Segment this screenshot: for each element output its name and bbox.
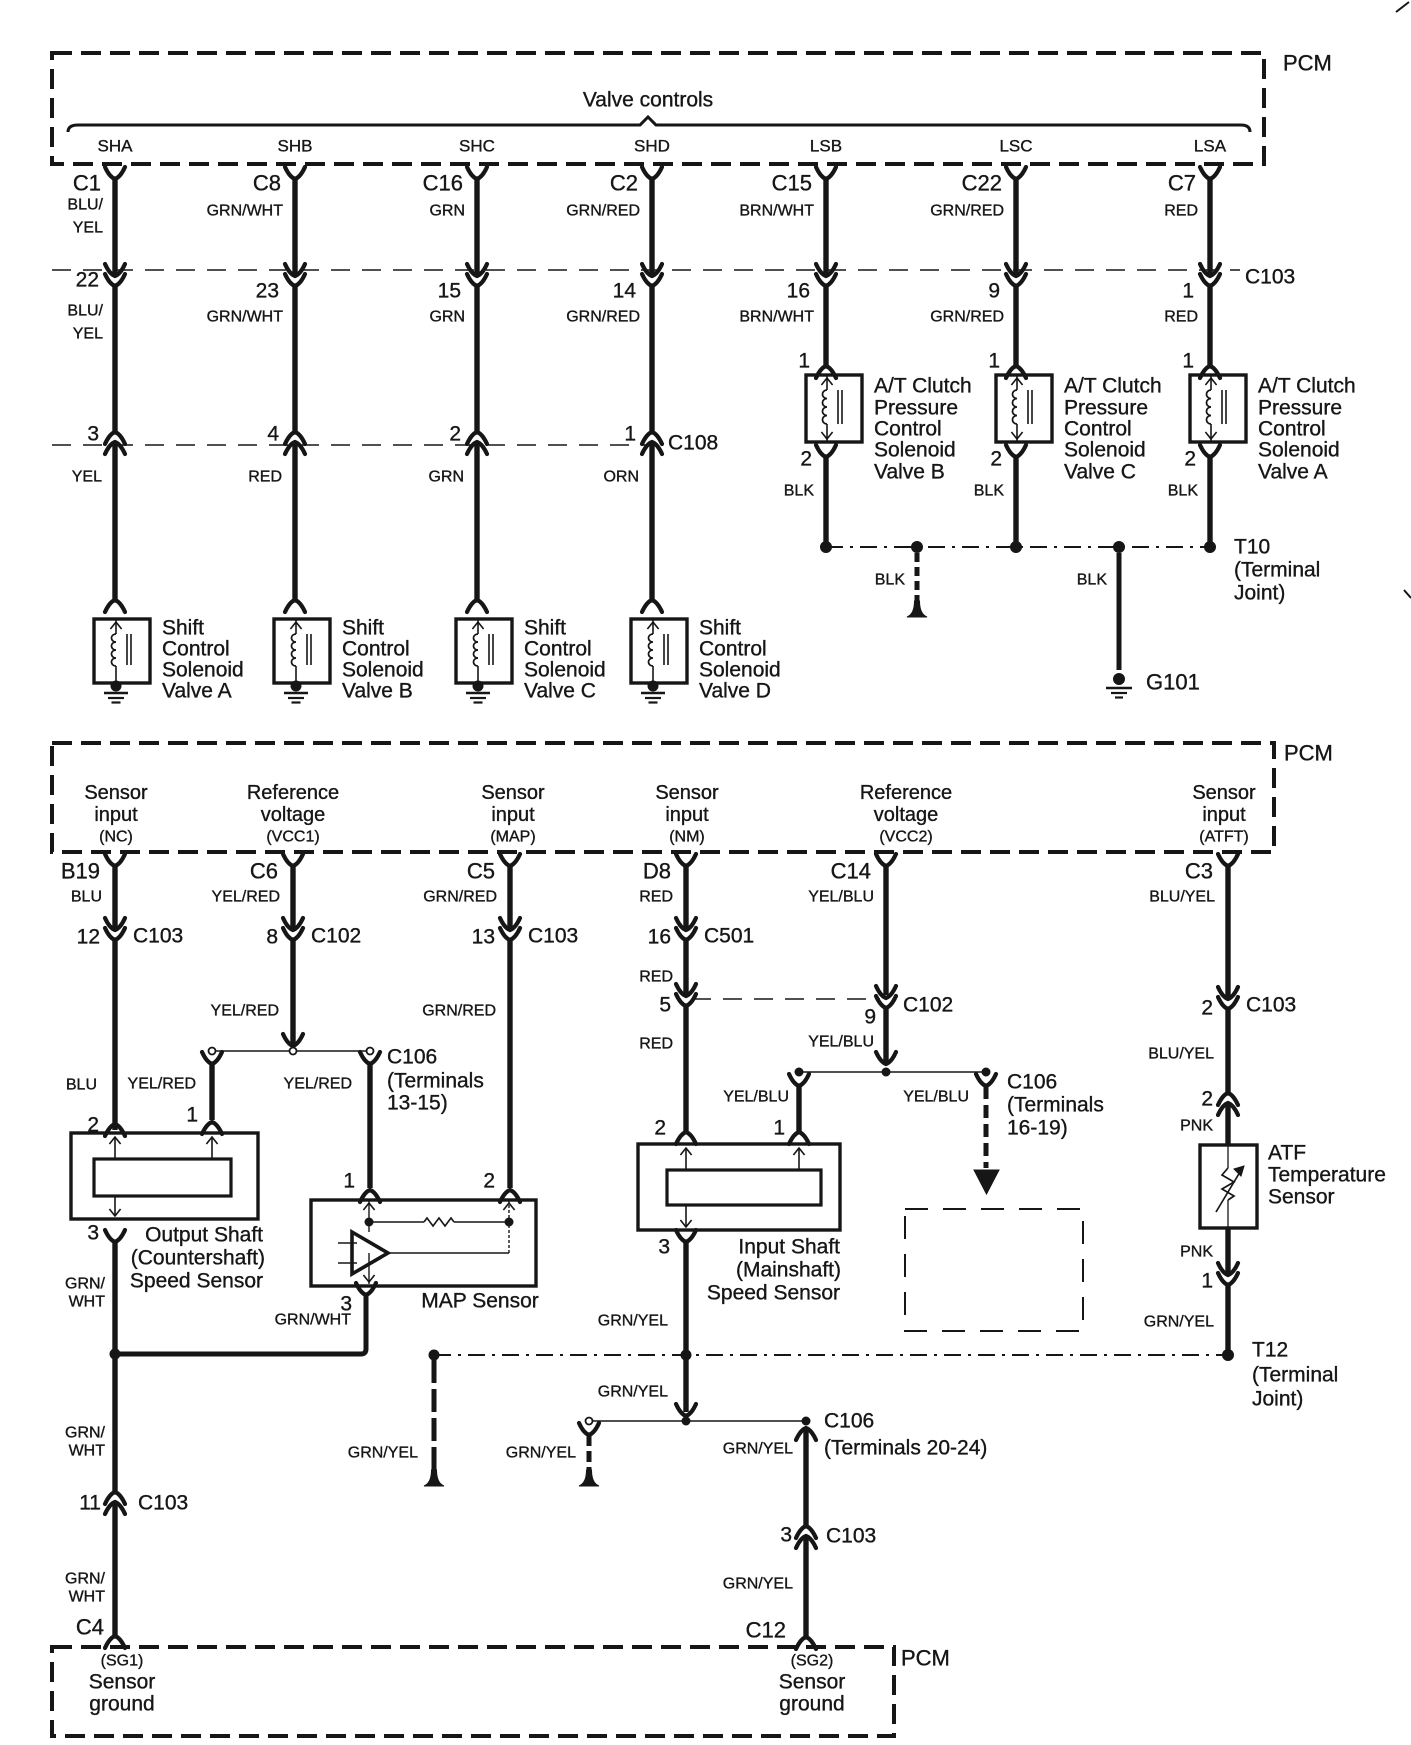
svg-text:YEL/BLU: YEL/BLU: [808, 1034, 874, 1051]
svg-text:16: 16: [787, 280, 810, 303]
svg-text:SHD: SHD: [634, 137, 670, 156]
svg-text:GRN/YEL: GRN/YEL: [723, 1441, 793, 1458]
svg-text:PCM: PCM: [1284, 741, 1333, 766]
svg-text:C103: C103: [1245, 266, 1295, 289]
svg-text:C102: C102: [903, 994, 953, 1017]
svg-text:(VCC1): (VCC1): [266, 829, 319, 846]
svg-text:GRN/RED: GRN/RED: [566, 309, 640, 326]
svg-text:Shift: Shift: [162, 617, 204, 640]
svg-text:Shift: Shift: [524, 617, 566, 640]
svg-text:3: 3: [87, 423, 99, 446]
svg-text:BLU/: BLU/: [67, 303, 103, 320]
svg-text:(NM): (NM): [669, 829, 705, 846]
svg-text:3: 3: [87, 1222, 99, 1245]
svg-text:GRN/RED: GRN/RED: [930, 203, 1004, 220]
svg-text:GRN/WHT: GRN/WHT: [207, 309, 284, 326]
svg-text:9: 9: [988, 280, 1000, 303]
svg-text:12: 12: [77, 926, 100, 949]
svg-text:C106: C106: [824, 1410, 874, 1433]
svg-text:23: 23: [256, 280, 279, 303]
svg-text:Joint): Joint): [1234, 582, 1285, 605]
svg-text:A/T Clutch: A/T Clutch: [1064, 375, 1162, 398]
svg-text:C4: C4: [76, 1615, 104, 1640]
svg-text:3: 3: [658, 1236, 670, 1259]
svg-text:Shift: Shift: [342, 617, 384, 640]
svg-text:GRN/: GRN/: [65, 1571, 106, 1588]
svg-text:RED: RED: [639, 969, 673, 986]
svg-text:8: 8: [266, 926, 278, 949]
svg-text:Valve C: Valve C: [524, 680, 596, 703]
svg-text:13-15): 13-15): [387, 1092, 448, 1115]
svg-text:Sensor: Sensor: [779, 1671, 846, 1694]
svg-text:PCM: PCM: [901, 1646, 950, 1671]
svg-text:(Countershaft): (Countershaft): [131, 1247, 265, 1270]
svg-text:Input Shaft: Input Shaft: [738, 1236, 840, 1259]
svg-text:C103: C103: [528, 925, 578, 948]
svg-text:2: 2: [1201, 1088, 1213, 1111]
svg-text:15: 15: [438, 280, 461, 303]
svg-text:Valve D: Valve D: [699, 680, 771, 703]
svg-text:BLK: BLK: [1168, 483, 1199, 500]
svg-text:Sensor: Sensor: [84, 782, 148, 804]
svg-text:(NC): (NC): [99, 829, 133, 846]
svg-text:(Terminal: (Terminal: [1234, 559, 1320, 582]
svg-text:1: 1: [624, 423, 636, 446]
svg-text:Reference: Reference: [247, 782, 339, 804]
svg-text:C3: C3: [1185, 859, 1213, 884]
svg-text:(Mainshaft): (Mainshaft): [736, 1259, 841, 1282]
svg-text:SHA: SHA: [98, 137, 134, 156]
svg-text:2: 2: [800, 448, 812, 471]
svg-text:GRN/: GRN/: [65, 1425, 106, 1442]
svg-text:GRN: GRN: [428, 469, 464, 486]
svg-text:(SG1): (SG1): [101, 1653, 144, 1670]
svg-text:PNK: PNK: [1180, 1244, 1213, 1261]
svg-text:B19: B19: [61, 859, 100, 884]
svg-text:13: 13: [472, 926, 495, 949]
svg-text:BLU/YEL: BLU/YEL: [1149, 889, 1215, 906]
svg-text:RED: RED: [248, 469, 282, 486]
svg-text:RED: RED: [1164, 203, 1198, 220]
svg-text:GRN/RED: GRN/RED: [422, 1003, 496, 1020]
svg-text:ATF: ATF: [1268, 1142, 1306, 1165]
svg-text:Solenoid: Solenoid: [1258, 439, 1340, 462]
svg-text:C7: C7: [1168, 171, 1196, 196]
svg-text:16: 16: [648, 926, 671, 949]
svg-text:C8: C8: [253, 171, 281, 196]
svg-text:Sensor: Sensor: [1268, 1186, 1335, 1209]
svg-text:ground: ground: [89, 1693, 154, 1716]
svg-text:Pressure: Pressure: [1258, 397, 1342, 420]
svg-text:C12: C12: [746, 1618, 786, 1643]
svg-text:1: 1: [1182, 280, 1194, 303]
svg-text:4: 4: [267, 423, 279, 446]
svg-text:GRN/YEL: GRN/YEL: [506, 1445, 576, 1462]
svg-text:GRN: GRN: [429, 309, 465, 326]
svg-text:1: 1: [1201, 1270, 1213, 1293]
svg-text:C16: C16: [423, 171, 463, 196]
svg-text:Temperature: Temperature: [1268, 1164, 1386, 1187]
svg-text:(Terminal: (Terminal: [1252, 1364, 1338, 1387]
svg-text:SHC: SHC: [459, 137, 495, 156]
svg-text:GRN: GRN: [429, 203, 465, 220]
svg-text:9: 9: [864, 1006, 876, 1029]
svg-text:YEL: YEL: [73, 220, 103, 237]
svg-text:Solenoid: Solenoid: [1064, 439, 1146, 462]
svg-text:1: 1: [798, 350, 810, 373]
svg-text:Solenoid: Solenoid: [524, 659, 606, 682]
svg-text:C106: C106: [387, 1046, 437, 1069]
svg-text:YEL: YEL: [72, 469, 102, 486]
svg-text:Pressure: Pressure: [1064, 397, 1148, 420]
svg-text:WHT: WHT: [69, 1294, 106, 1311]
svg-text:C106: C106: [1007, 1071, 1057, 1094]
svg-text:ORN: ORN: [603, 469, 639, 486]
svg-text:YEL/BLU: YEL/BLU: [808, 889, 874, 906]
svg-text:Valve controls: Valve controls: [583, 89, 713, 112]
svg-text:16-19): 16-19): [1007, 1117, 1068, 1140]
svg-text:YEL/RED: YEL/RED: [211, 1003, 279, 1020]
svg-text:Shift: Shift: [699, 617, 741, 640]
svg-text:RED: RED: [639, 1036, 673, 1053]
svg-text:14: 14: [613, 280, 637, 303]
svg-text:T10: T10: [1234, 536, 1270, 559]
svg-text:Control: Control: [699, 638, 767, 661]
svg-text:LSA: LSA: [1194, 137, 1227, 156]
svg-text:Sensor: Sensor: [481, 782, 545, 804]
svg-text:Valve A: Valve A: [162, 680, 232, 703]
svg-text:5: 5: [659, 994, 671, 1017]
svg-text:1: 1: [773, 1117, 785, 1140]
svg-text:BLU: BLU: [71, 889, 102, 906]
svg-text:Solenoid: Solenoid: [342, 659, 424, 682]
svg-text:C103: C103: [826, 1525, 876, 1548]
svg-text:Solenoid: Solenoid: [162, 659, 244, 682]
svg-text:Solenoid: Solenoid: [699, 659, 781, 682]
svg-text:input: input: [665, 804, 709, 826]
svg-text:BLU/: BLU/: [67, 197, 103, 214]
svg-text:Valve A: Valve A: [1258, 461, 1328, 484]
svg-text:Output Shaft: Output Shaft: [145, 1224, 263, 1247]
svg-text:C14: C14: [831, 859, 871, 884]
svg-text:YEL/BLU: YEL/BLU: [903, 1089, 969, 1106]
svg-text:voltage: voltage: [261, 804, 326, 826]
svg-text:Sensor: Sensor: [655, 782, 719, 804]
svg-text:Control: Control: [524, 638, 592, 661]
svg-text:11: 11: [79, 1492, 101, 1515]
svg-text:1: 1: [1182, 350, 1194, 373]
svg-text:Control: Control: [342, 638, 410, 661]
svg-text:(Terminals 20-24): (Terminals 20-24): [824, 1437, 987, 1460]
svg-text:2: 2: [449, 423, 461, 446]
svg-text:BLK: BLK: [974, 483, 1005, 500]
svg-text:C15: C15: [772, 171, 812, 196]
svg-text:2: 2: [654, 1117, 666, 1140]
svg-text:(ATFT): (ATFT): [1199, 829, 1248, 846]
svg-text:Reference: Reference: [860, 782, 952, 804]
svg-text:C22: C22: [962, 171, 1002, 196]
svg-text:BLU: BLU: [66, 1077, 97, 1094]
svg-text:GRN/RED: GRN/RED: [423, 889, 497, 906]
svg-text:BLK: BLK: [875, 572, 906, 589]
svg-text:LSC: LSC: [999, 137, 1032, 156]
svg-text:YEL/BLU: YEL/BLU: [723, 1089, 789, 1106]
svg-text:Speed Sensor: Speed Sensor: [130, 1270, 263, 1293]
svg-text:C108: C108: [668, 432, 718, 455]
svg-text:LSB: LSB: [810, 137, 842, 156]
svg-text:1: 1: [343, 1170, 355, 1193]
svg-text:input: input: [1202, 804, 1246, 826]
svg-text:GRN/RED: GRN/RED: [930, 309, 1004, 326]
svg-text:(SG2): (SG2): [791, 1653, 834, 1670]
svg-text:BRN/WHT: BRN/WHT: [739, 309, 814, 326]
svg-text:Sensor: Sensor: [1192, 782, 1256, 804]
svg-text:G101: G101: [1146, 670, 1200, 695]
svg-text:Solenoid: Solenoid: [874, 439, 956, 462]
svg-text:PNK: PNK: [1180, 1118, 1213, 1135]
svg-text:Pressure: Pressure: [874, 397, 958, 420]
svg-text:voltage: voltage: [874, 804, 939, 826]
svg-text:WHT: WHT: [69, 1443, 106, 1460]
svg-text:input: input: [491, 804, 535, 826]
svg-text:(MAP): (MAP): [490, 829, 535, 846]
svg-text:C2: C2: [610, 171, 638, 196]
svg-text:RED: RED: [639, 889, 673, 906]
svg-text:YEL/RED: YEL/RED: [128, 1076, 196, 1093]
svg-text:(Terminals: (Terminals: [387, 1070, 484, 1093]
svg-text:Control: Control: [162, 638, 230, 661]
svg-text:GRN/WHT: GRN/WHT: [275, 1312, 352, 1329]
svg-text:GRN/YEL: GRN/YEL: [598, 1384, 668, 1401]
svg-text:BLU/YEL: BLU/YEL: [1148, 1046, 1214, 1063]
svg-text:2: 2: [990, 448, 1002, 471]
svg-text:D8: D8: [643, 859, 671, 884]
svg-text:Valve B: Valve B: [342, 680, 413, 703]
svg-text:GRN/YEL: GRN/YEL: [348, 1445, 418, 1462]
svg-text:GRN/: GRN/: [65, 1276, 106, 1293]
svg-text:22: 22: [76, 269, 99, 292]
svg-text:C5: C5: [467, 859, 495, 884]
svg-text:GRN/YEL: GRN/YEL: [598, 1313, 668, 1330]
svg-text:C102: C102: [311, 925, 361, 948]
svg-text:Control: Control: [874, 418, 942, 441]
svg-text:Valve C: Valve C: [1064, 461, 1136, 484]
svg-text:Valve B: Valve B: [874, 461, 945, 484]
svg-text:BLK: BLK: [1077, 572, 1108, 589]
svg-text:RED: RED: [1164, 309, 1198, 326]
svg-text:input: input: [94, 804, 138, 826]
svg-text:Joint): Joint): [1252, 1388, 1303, 1411]
svg-text:YEL/RED: YEL/RED: [212, 889, 280, 906]
svg-text:C501: C501: [704, 925, 754, 948]
svg-text:C103: C103: [133, 925, 183, 948]
svg-text:ground: ground: [779, 1693, 844, 1716]
svg-text:2: 2: [483, 1170, 495, 1193]
svg-text:A/T Clutch: A/T Clutch: [1258, 375, 1356, 398]
svg-text:C103: C103: [1246, 994, 1296, 1017]
svg-text:PCM: PCM: [1283, 51, 1332, 76]
svg-text:Control: Control: [1258, 418, 1326, 441]
svg-text:BLK: BLK: [784, 483, 815, 500]
svg-text:SHB: SHB: [278, 137, 313, 156]
svg-text:GRN/RED: GRN/RED: [566, 203, 640, 220]
svg-text:(VCC2): (VCC2): [879, 829, 932, 846]
svg-text:3: 3: [780, 1524, 792, 1547]
svg-text:2: 2: [1184, 448, 1196, 471]
svg-text:Control: Control: [1064, 418, 1132, 441]
svg-text:T12: T12: [1252, 1339, 1288, 1362]
svg-text:GRN/WHT: GRN/WHT: [207, 203, 284, 220]
svg-text:2: 2: [1201, 997, 1213, 1020]
svg-text:C103: C103: [138, 1492, 188, 1515]
svg-text:C6: C6: [250, 859, 278, 884]
svg-text:Sensor: Sensor: [89, 1671, 156, 1694]
svg-text:1: 1: [988, 350, 1000, 373]
svg-text:YEL/RED: YEL/RED: [284, 1076, 352, 1093]
svg-text:WHT: WHT: [69, 1589, 106, 1606]
svg-text:(Terminals: (Terminals: [1007, 1094, 1104, 1117]
svg-text:MAP Sensor: MAP Sensor: [421, 1290, 539, 1313]
svg-text:YEL: YEL: [73, 326, 103, 343]
svg-text:A/T Clutch: A/T Clutch: [874, 375, 972, 398]
svg-text:Speed Sensor: Speed Sensor: [707, 1282, 840, 1305]
svg-text:BRN/WHT: BRN/WHT: [739, 203, 814, 220]
svg-text:GRN/YEL: GRN/YEL: [723, 1576, 793, 1593]
svg-text:1: 1: [186, 1104, 198, 1127]
svg-text:GRN/YEL: GRN/YEL: [1144, 1314, 1214, 1331]
svg-text:C1: C1: [73, 171, 101, 196]
